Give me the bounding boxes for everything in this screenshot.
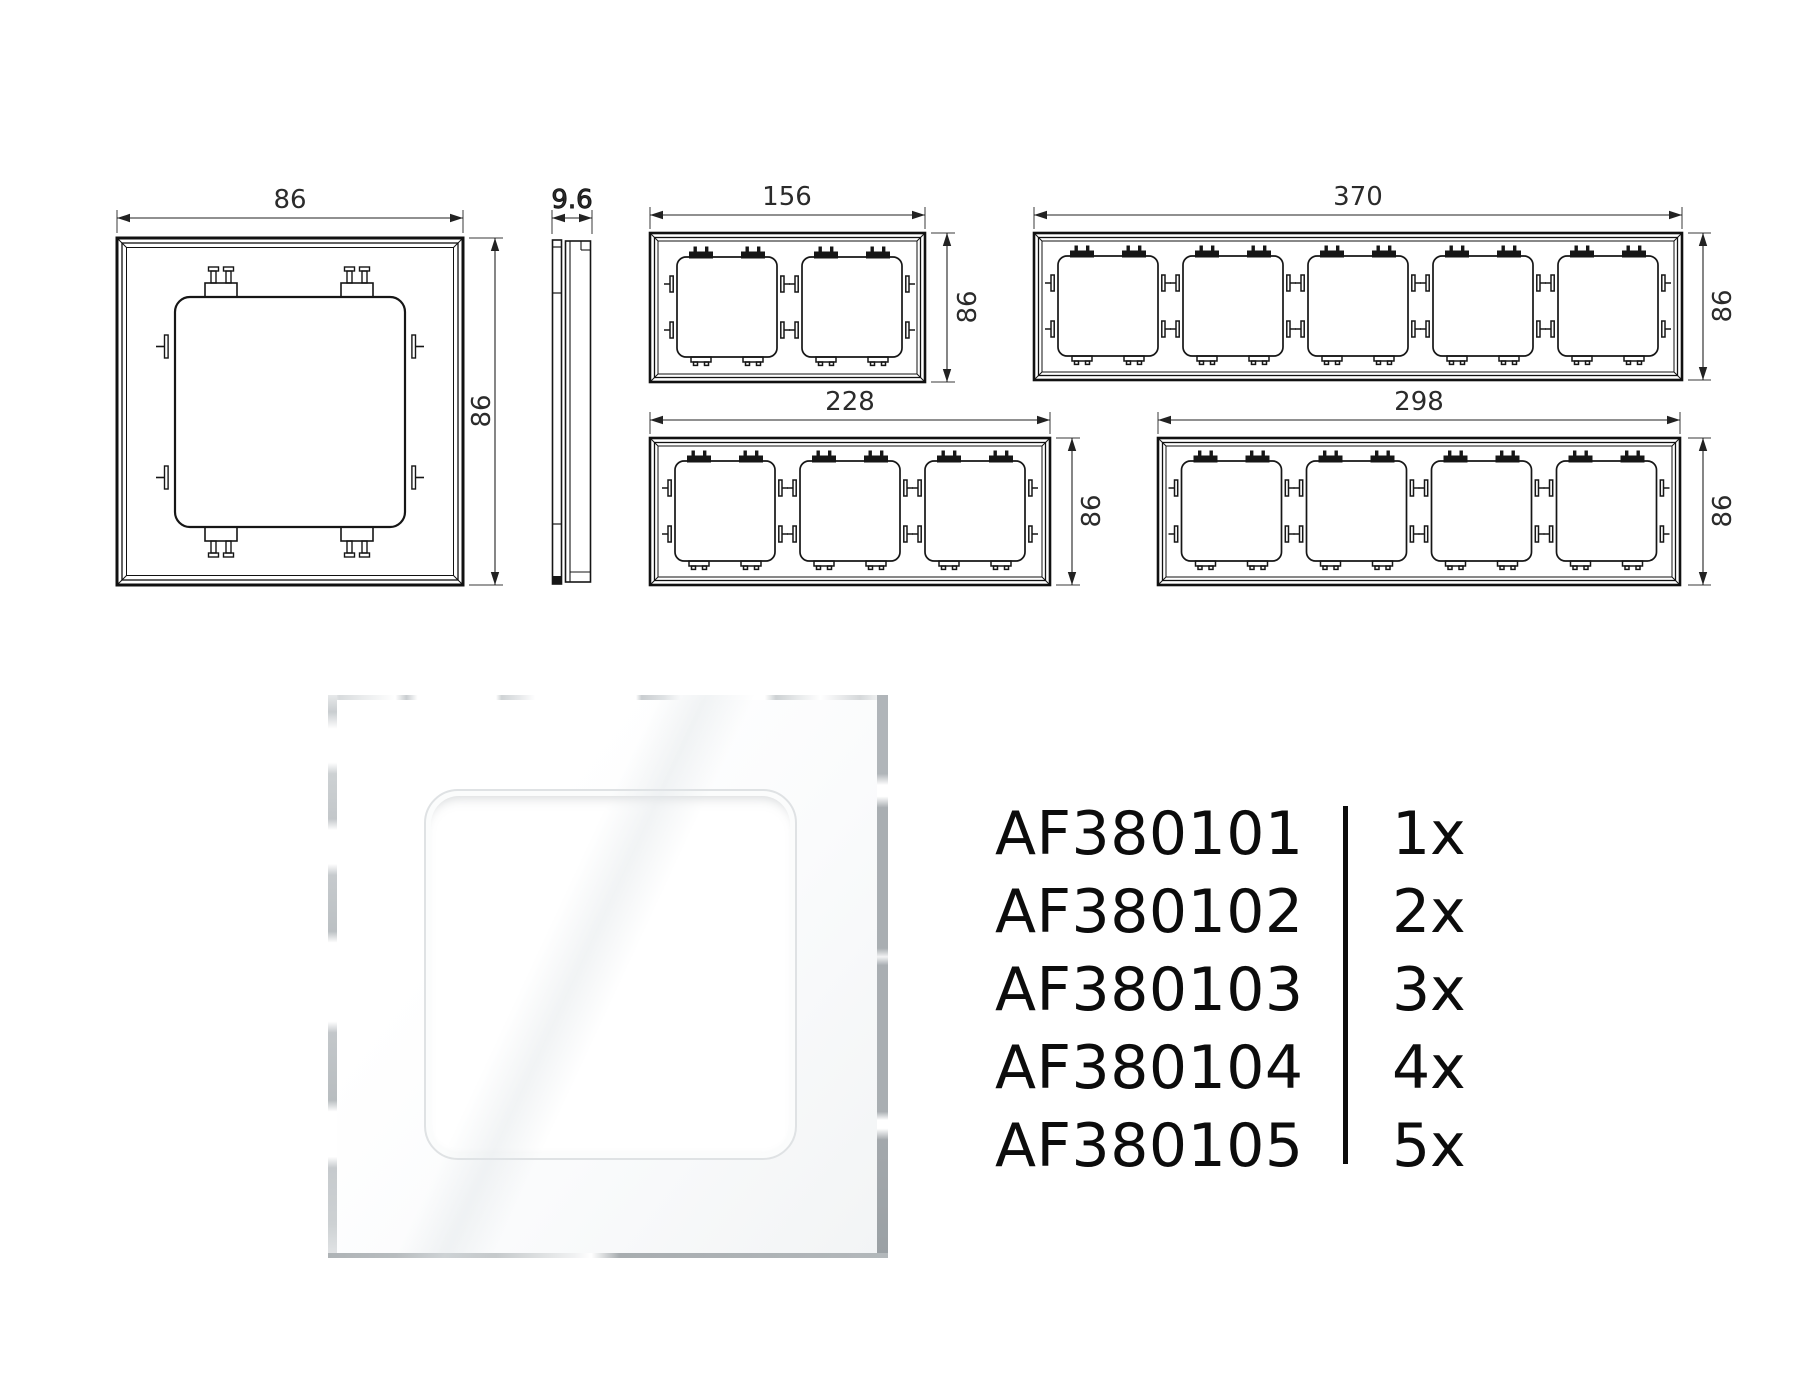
drawing-frame-2gang: 156 86	[650, 182, 983, 382]
module-opening	[424, 789, 797, 1160]
dim-height-label: 86	[1708, 494, 1738, 527]
part-number: AF380105	[995, 1111, 1392, 1181]
product-row: AF380102 2x	[995, 873, 1466, 951]
drawing-frame-1gang-front: 86 86	[117, 185, 503, 585]
quantity-value: 1x	[1392, 799, 1466, 869]
drawing-frame-5gang: 370 86	[1034, 182, 1738, 380]
dim-width-label: 370	[1333, 182, 1383, 212]
plate-left-bevel	[328, 695, 337, 1258]
part-number: AF380103	[995, 955, 1392, 1025]
technical-drawings: 86 86 9.6	[0, 0, 1800, 640]
drawing-frame-4gang: 298 86	[1158, 387, 1738, 585]
dim-height-label: 86	[1708, 289, 1738, 322]
part-number: AF380101	[995, 799, 1392, 869]
dim-height-label: 86	[467, 394, 497, 427]
module-cutout-drawing	[156, 267, 424, 557]
dim-height-label: 86	[1077, 494, 1107, 527]
dim-depth-label: 9.6	[551, 185, 592, 215]
plate-top-bevel	[328, 695, 888, 700]
product-row: AF380103 3x	[995, 951, 1466, 1029]
product-row: AF380105 5x	[995, 1107, 1466, 1185]
product-row: AF380101 1x	[995, 795, 1466, 873]
quantity-value: 3x	[1392, 955, 1466, 1025]
product-table: AF380101 1x AF380102 2x AF380103 3x AF38…	[995, 795, 1466, 1185]
drawing-frame-side-profile: 9.6	[551, 185, 592, 584]
dim-width-label: 86	[273, 185, 306, 215]
dim-height-label: 86	[953, 290, 983, 323]
part-number: AF380104	[995, 1033, 1392, 1103]
quantity-value: 2x	[1392, 877, 1466, 947]
module-opening-inner	[431, 796, 790, 1153]
dim-width-label: 298	[1394, 387, 1444, 417]
quantity-value: 5x	[1392, 1111, 1466, 1181]
plate-bottom-bevel	[328, 1253, 888, 1258]
drawing-frame-3gang: 228 86	[650, 387, 1107, 585]
dim-width-label: 156	[762, 182, 812, 212]
dim-width-label: 228	[825, 387, 875, 417]
plate-right-bevel	[877, 695, 888, 1258]
part-number: AF380102	[995, 877, 1392, 947]
frame-3d-render	[328, 695, 888, 1258]
datasheet-page: 86 86 9.6	[0, 0, 1800, 1400]
product-row: AF380104 4x	[995, 1029, 1466, 1107]
quantity-value: 4x	[1392, 1033, 1466, 1103]
